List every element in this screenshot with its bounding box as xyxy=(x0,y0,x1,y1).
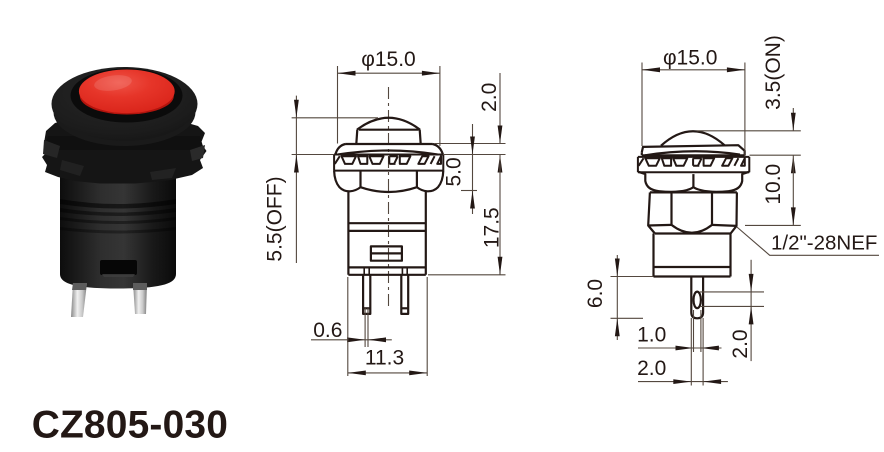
svg-text:φ15.0: φ15.0 xyxy=(361,48,416,71)
svg-text:3.5(ON): 3.5(ON) xyxy=(762,35,785,110)
svg-text:2.0: 2.0 xyxy=(637,357,666,380)
svg-text:5.0: 5.0 xyxy=(443,157,466,186)
svg-text:φ15.0: φ15.0 xyxy=(663,47,718,70)
svg-text:6.0: 6.0 xyxy=(584,279,607,308)
svg-text:CZ805-030: CZ805-030 xyxy=(32,403,228,446)
svg-text:11.3: 11.3 xyxy=(365,347,404,370)
svg-text:1/2"-28NEF: 1/2"-28NEF xyxy=(771,232,877,255)
svg-text:1.0: 1.0 xyxy=(637,324,666,347)
svg-text:0.6: 0.6 xyxy=(313,319,342,342)
svg-text:5.5(OFF): 5.5(OFF) xyxy=(264,176,287,261)
svg-text:2.0: 2.0 xyxy=(729,329,752,358)
svg-text:2.0: 2.0 xyxy=(478,83,501,112)
svg-text:10.0: 10.0 xyxy=(762,164,785,205)
